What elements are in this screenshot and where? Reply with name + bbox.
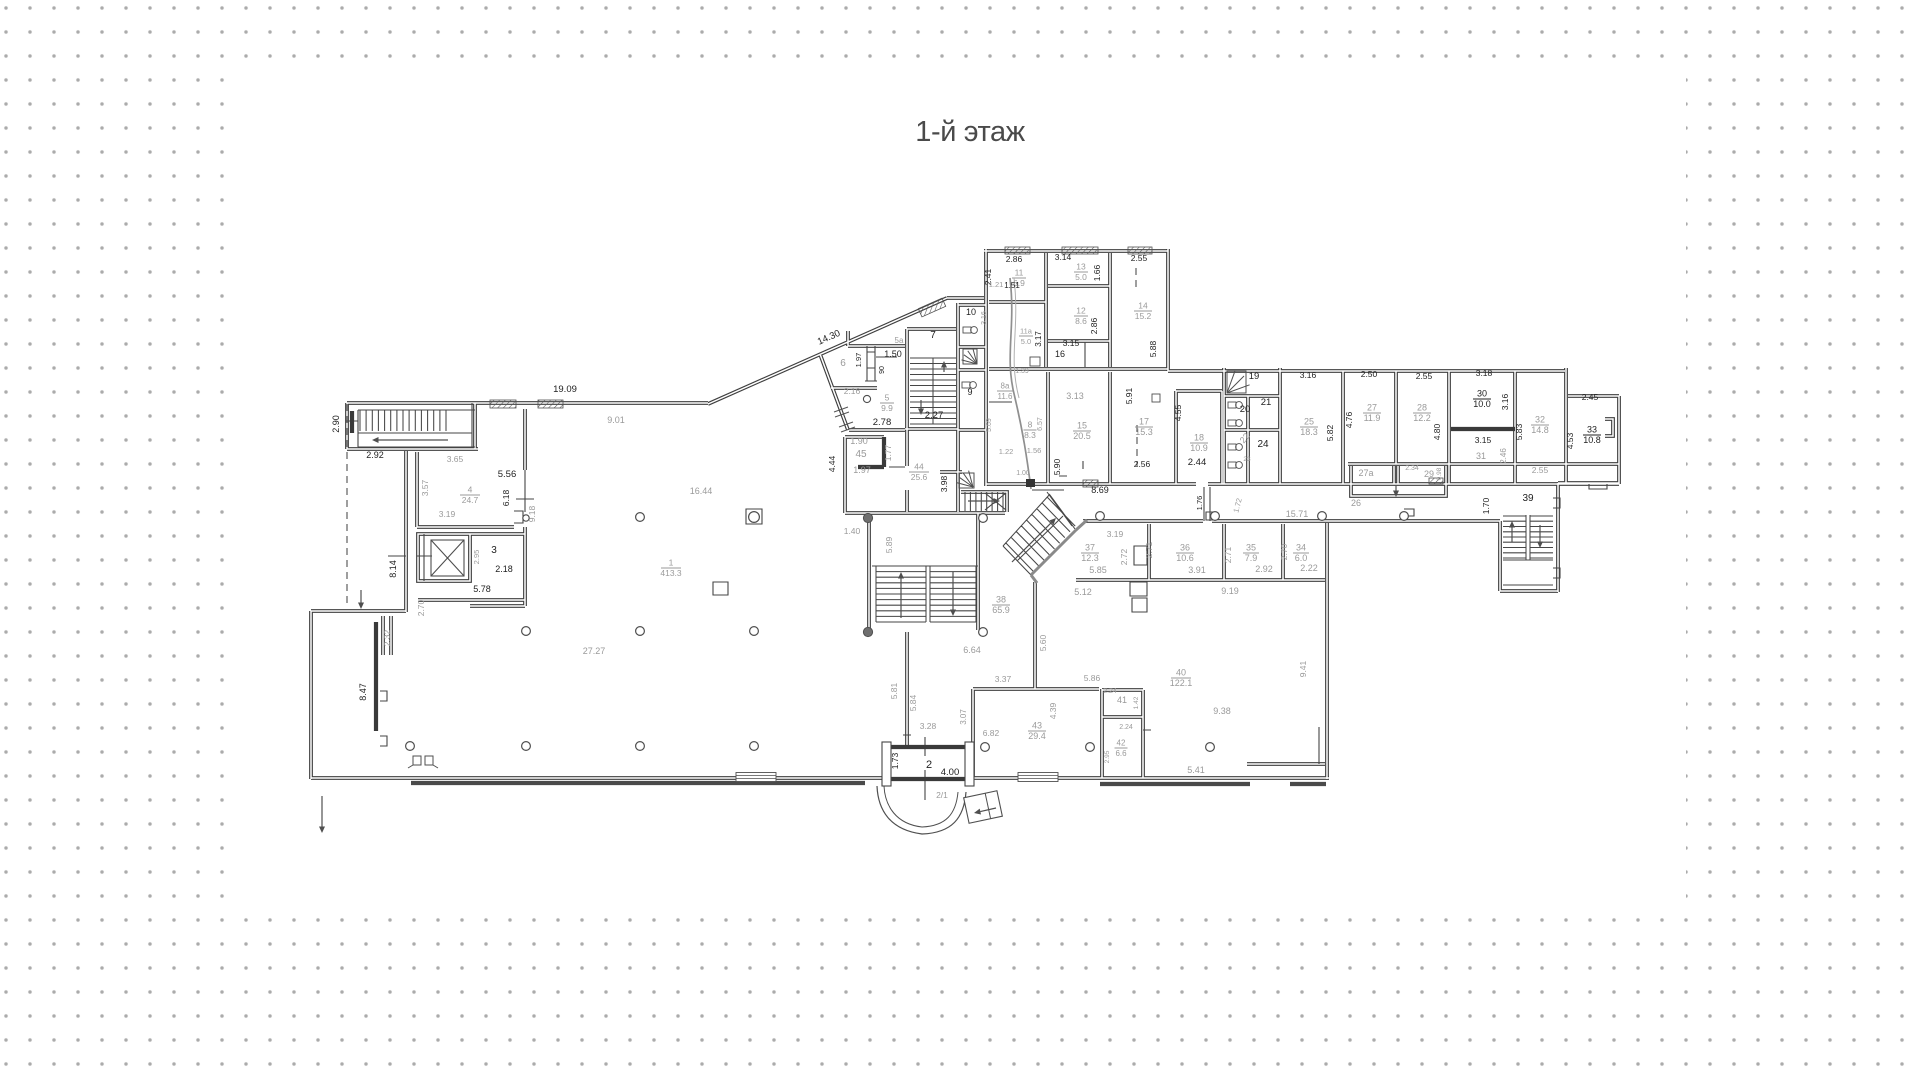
- svg-text:2.95: 2.95: [472, 550, 481, 565]
- svg-text:12.3: 12.3: [1081, 553, 1099, 563]
- svg-text:41: 41: [1117, 695, 1127, 705]
- svg-text:7: 7: [930, 330, 936, 341]
- svg-text:20.5: 20.5: [1073, 431, 1091, 441]
- svg-text:0.98: 0.98: [1436, 467, 1443, 480]
- svg-text:2: 2: [926, 759, 932, 771]
- svg-text:1.51: 1.51: [1004, 281, 1020, 290]
- svg-text:2.50: 2.50: [1361, 369, 1378, 379]
- svg-text:9.19: 9.19: [1221, 586, 1239, 596]
- svg-text:10.8: 10.8: [1583, 435, 1601, 445]
- svg-text:5.91: 5.91: [1124, 387, 1134, 404]
- svg-text:12: 12: [1076, 306, 1086, 316]
- svg-text:28: 28: [1417, 403, 1427, 413]
- svg-text:10.6: 10.6: [1176, 553, 1194, 563]
- svg-text:3.28: 3.28: [920, 721, 937, 731]
- svg-text:5.56: 5.56: [498, 469, 517, 480]
- svg-text:9.18: 9.18: [527, 505, 537, 522]
- svg-text:2.92: 2.92: [366, 450, 384, 460]
- svg-text:2.55: 2.55: [1532, 465, 1549, 475]
- svg-text:3.65: 3.65: [447, 454, 464, 464]
- svg-text:4.55: 4.55: [1173, 404, 1183, 421]
- svg-text:5: 5: [885, 393, 890, 403]
- svg-text:5.69: 5.69: [986, 418, 993, 432]
- svg-text:24.7: 24.7: [462, 495, 479, 505]
- svg-text:8.69: 8.69: [1091, 485, 1109, 495]
- svg-text:2.34: 2.34: [1405, 465, 1419, 472]
- svg-text:1.72: 1.72: [1231, 497, 1243, 513]
- svg-text:4.80: 4.80: [1432, 423, 1442, 440]
- svg-text:23: 23: [1243, 456, 1251, 463]
- svg-text:10.9: 10.9: [1190, 443, 1208, 453]
- svg-text:9.9: 9.9: [881, 403, 893, 413]
- svg-text:9.41: 9.41: [1298, 660, 1308, 677]
- svg-text:1.22: 1.22: [999, 447, 1014, 456]
- svg-text:15.3: 15.3: [1135, 427, 1153, 437]
- svg-text:8a: 8a: [1001, 382, 1010, 391]
- svg-text:27a: 27a: [1358, 468, 1373, 478]
- svg-text:5a: 5a: [895, 336, 904, 345]
- svg-text:42: 42: [1117, 739, 1126, 748]
- svg-text:2.78: 2.78: [873, 417, 892, 428]
- svg-text:5.41: 5.41: [1187, 765, 1205, 775]
- svg-text:2.95: 2.95: [1104, 750, 1111, 763]
- svg-text:27: 27: [1367, 403, 1377, 413]
- svg-text:5.85: 5.85: [1089, 565, 1107, 575]
- svg-text:37: 37: [1085, 543, 1095, 553]
- svg-text:4: 4: [468, 485, 473, 495]
- svg-text:6.0: 6.0: [1295, 553, 1308, 563]
- svg-text:2.18: 2.18: [495, 564, 513, 574]
- svg-text:8.47: 8.47: [358, 683, 368, 701]
- svg-text:5.83: 5.83: [1514, 423, 1524, 440]
- svg-text:17: 17: [1139, 417, 1149, 427]
- svg-text:4.00: 4.00: [941, 767, 960, 778]
- svg-text:1.77: 1.77: [883, 444, 893, 461]
- svg-text:122.1: 122.1: [1170, 678, 1193, 688]
- svg-text:10.0: 10.0: [1473, 399, 1491, 409]
- svg-text:10: 10: [966, 307, 976, 317]
- svg-text:43: 43: [1032, 721, 1042, 731]
- svg-text:11a: 11a: [1020, 327, 1033, 336]
- svg-text:38: 38: [996, 595, 1006, 605]
- svg-text:3.15: 3.15: [1475, 435, 1492, 445]
- svg-text:2.70: 2.70: [416, 599, 426, 616]
- svg-text:3.16: 3.16: [1500, 393, 1510, 410]
- svg-text:3.17: 3.17: [1034, 331, 1043, 347]
- svg-text:34: 34: [1296, 543, 1306, 553]
- svg-text:5.78: 5.78: [473, 584, 491, 594]
- svg-text:6.57: 6.57: [1037, 417, 1044, 431]
- svg-text:3.13: 3.13: [1066, 391, 1084, 401]
- svg-text:2.55: 2.55: [1416, 371, 1433, 381]
- svg-text:2.56: 2.56: [1134, 459, 1151, 469]
- svg-text:5.82: 5.82: [1325, 424, 1335, 441]
- svg-text:1.21: 1.21: [989, 280, 1004, 289]
- svg-text:24: 24: [1257, 439, 1269, 450]
- svg-text:1.70: 1.70: [1481, 497, 1491, 514]
- svg-text:19.09: 19.09: [553, 384, 577, 395]
- svg-text:3.07: 3.07: [959, 709, 968, 725]
- svg-text:15.2: 15.2: [1135, 311, 1152, 321]
- svg-text:5.60: 5.60: [1038, 634, 1048, 651]
- svg-text:65.9: 65.9: [992, 605, 1010, 615]
- svg-text:18: 18: [1194, 433, 1204, 443]
- svg-text:7.9: 7.9: [1245, 553, 1258, 563]
- svg-text:2.27: 2.27: [925, 410, 944, 421]
- svg-text:5.89: 5.89: [884, 536, 894, 553]
- svg-text:3.37: 3.37: [995, 674, 1012, 684]
- svg-text:2.72: 2.72: [1119, 548, 1129, 565]
- svg-text:5.81: 5.81: [889, 682, 899, 699]
- svg-text:11.9: 11.9: [1364, 413, 1381, 423]
- svg-text:11.6: 11.6: [998, 392, 1014, 401]
- svg-text:4.76: 4.76: [1344, 411, 1354, 428]
- svg-text:413.3: 413.3: [660, 568, 682, 578]
- svg-text:2.32: 2.32: [382, 629, 392, 646]
- svg-text:3: 3: [491, 545, 497, 556]
- svg-text:3.19: 3.19: [439, 509, 456, 519]
- svg-text:8: 8: [1028, 420, 1033, 430]
- svg-text:25.6: 25.6: [911, 472, 928, 482]
- svg-text:5.0: 5.0: [1021, 337, 1031, 346]
- svg-text:3.14: 3.14: [1055, 252, 1072, 262]
- svg-text:8.6: 8.6: [1075, 316, 1087, 326]
- svg-text:1.66: 1.66: [1092, 264, 1102, 281]
- svg-text:26: 26: [1351, 498, 1361, 508]
- svg-text:20: 20: [1240, 404, 1251, 415]
- svg-text:9.38: 9.38: [1213, 706, 1231, 716]
- svg-text:1.40: 1.40: [844, 526, 861, 536]
- svg-text:1.97: 1.97: [854, 353, 863, 368]
- svg-text:1: 1: [669, 558, 674, 568]
- svg-text:32: 32: [1535, 415, 1545, 425]
- svg-text:2.86: 2.86: [1006, 254, 1023, 264]
- svg-text:39: 39: [1522, 493, 1534, 504]
- svg-text:2.86: 2.86: [1089, 317, 1099, 334]
- svg-text:6.18: 6.18: [501, 489, 511, 506]
- svg-text:19: 19: [1249, 371, 1260, 382]
- svg-text:3.98: 3.98: [939, 475, 949, 492]
- svg-text:3.16: 3.16: [981, 311, 988, 325]
- svg-text:8.3: 8.3: [1024, 430, 1036, 440]
- svg-text:15.71: 15.71: [1286, 509, 1309, 519]
- svg-text:2.44: 2.44: [1188, 457, 1207, 468]
- svg-text:9.01: 9.01: [607, 415, 625, 425]
- svg-text:45: 45: [855, 449, 867, 460]
- svg-text:4.39: 4.39: [1048, 702, 1058, 719]
- svg-text:33: 33: [1587, 425, 1597, 435]
- svg-text:18.3: 18.3: [1300, 427, 1318, 437]
- svg-text:3.91: 3.91: [1188, 565, 1206, 575]
- svg-text:3.57: 3.57: [420, 479, 430, 496]
- svg-text:3.19: 3.19: [1107, 529, 1124, 539]
- svg-text:2.71: 2.71: [1144, 541, 1154, 558]
- svg-text:16.44: 16.44: [690, 486, 713, 496]
- svg-text:1.90: 1.90: [850, 436, 868, 446]
- svg-text:3.18: 3.18: [1476, 368, 1493, 378]
- svg-text:1.97: 1.97: [853, 465, 871, 475]
- svg-text:5.86: 5.86: [1084, 673, 1101, 683]
- svg-text:14.8: 14.8: [1531, 425, 1549, 435]
- svg-text:12.2: 12.2: [1413, 413, 1431, 423]
- svg-text:4.44: 4.44: [827, 455, 837, 472]
- svg-text:2.92: 2.92: [1255, 564, 1273, 574]
- svg-text:29.4: 29.4: [1028, 731, 1046, 741]
- svg-text:40: 40: [1176, 668, 1186, 678]
- svg-text:8.14: 8.14: [388, 560, 398, 578]
- svg-text:29: 29: [1424, 469, 1434, 479]
- svg-text:3.16: 3.16: [1300, 370, 1317, 380]
- svg-text:2/1: 2/1: [936, 790, 948, 800]
- svg-text:1.39: 1.39: [1015, 368, 1029, 375]
- svg-text:31: 31: [1476, 451, 1486, 461]
- svg-text:16: 16: [1055, 349, 1065, 359]
- svg-text:2.24: 2.24: [1103, 688, 1117, 695]
- svg-text:2.45: 2.45: [1582, 392, 1599, 402]
- svg-text:1.56: 1.56: [1027, 446, 1042, 455]
- svg-text:21: 21: [1261, 397, 1272, 408]
- svg-text:27.27: 27.27: [583, 646, 606, 656]
- svg-text:5.90: 5.90: [1052, 458, 1062, 475]
- svg-text:6.6: 6.6: [1115, 749, 1127, 758]
- svg-text:5.12: 5.12: [1074, 587, 1092, 597]
- svg-text:2.46: 2.46: [1499, 448, 1508, 464]
- svg-text:14: 14: [1138, 301, 1148, 311]
- svg-text:1.00: 1.00: [1016, 470, 1030, 477]
- svg-text:90: 90: [879, 366, 886, 374]
- svg-text:1.50: 1.50: [884, 349, 902, 359]
- svg-text:6: 6: [840, 358, 846, 369]
- svg-text:13: 13: [1076, 262, 1086, 272]
- svg-text:4.53: 4.53: [1565, 432, 1575, 449]
- svg-text:2.71: 2.71: [1223, 546, 1233, 563]
- svg-text:3.15: 3.15: [1063, 338, 1080, 348]
- svg-text:5.0: 5.0: [1075, 272, 1087, 282]
- svg-text:2.55: 2.55: [1131, 253, 1148, 263]
- svg-text:2.22: 2.22: [1300, 563, 1318, 573]
- svg-text:5.84: 5.84: [908, 694, 918, 711]
- svg-text:9: 9: [967, 387, 972, 397]
- svg-text:2.16: 2.16: [844, 386, 861, 396]
- svg-text:6.64: 6.64: [963, 645, 981, 655]
- svg-text:25: 25: [1304, 417, 1314, 427]
- svg-text:36: 36: [1180, 543, 1190, 553]
- svg-text:1.76: 1.76: [1195, 496, 1204, 511]
- svg-text:44: 44: [914, 462, 924, 472]
- svg-text:5.88: 5.88: [1148, 340, 1158, 357]
- svg-text:30: 30: [1477, 389, 1487, 399]
- svg-text:2.70: 2.70: [1279, 543, 1289, 560]
- svg-text:35: 35: [1246, 543, 1256, 553]
- svg-text:1.73: 1.73: [890, 752, 900, 769]
- svg-text:11: 11: [1015, 268, 1024, 278]
- svg-text:1.42: 1.42: [1133, 696, 1140, 709]
- svg-text:6.82: 6.82: [983, 728, 1000, 738]
- svg-text:15: 15: [1077, 421, 1087, 431]
- svg-text:2.24: 2.24: [1119, 724, 1133, 731]
- svg-text:2.90: 2.90: [331, 415, 341, 433]
